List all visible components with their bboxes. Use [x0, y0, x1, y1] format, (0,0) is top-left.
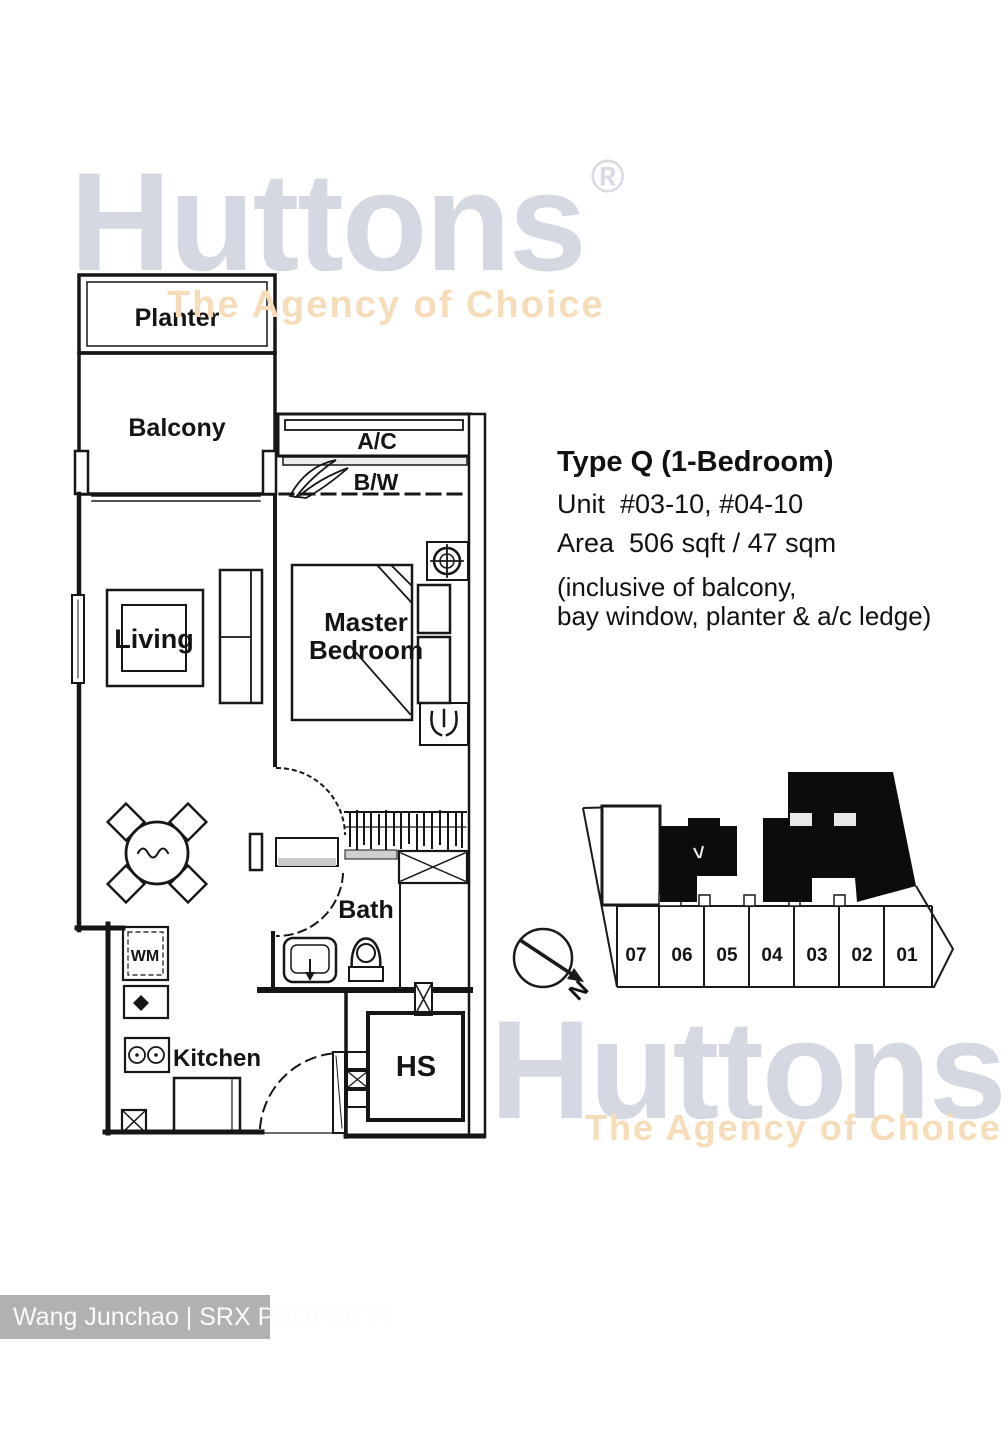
- living-window: [72, 595, 84, 683]
- unit-type-title: Type Q (1-Bedroom): [557, 446, 931, 479]
- credit-text: Wang Junchao | SRX PROPERTY: [0, 1303, 395, 1332]
- site-plan: 07 06 05 04 03 02 01: [583, 772, 953, 987]
- credit-bar: Wang Junchao | SRX PROPERTY: [0, 1295, 270, 1339]
- bay-window-label: B/W: [354, 469, 399, 495]
- stack-07: 07: [625, 945, 646, 966]
- area-note-line-1: (inclusive of balcony,: [557, 573, 931, 602]
- ac-ledge-label: A/C: [357, 428, 397, 454]
- master-bedroom-label-2: Bedroom: [309, 635, 423, 665]
- north-label: N: [563, 975, 593, 1005]
- living-label: Living: [114, 624, 194, 654]
- washing-machine-label: WM: [131, 948, 159, 965]
- stack-05: 05: [716, 945, 738, 966]
- master-bedroom-label-1: Master: [324, 607, 408, 637]
- right-wall: [469, 414, 485, 1137]
- bath-label: Bath: [338, 896, 394, 924]
- stack-01: 01: [896, 945, 918, 966]
- tower-a-tab: [688, 818, 720, 828]
- household-shelter-label: HS: [396, 1051, 436, 1083]
- planter-label: Planter: [135, 304, 220, 332]
- unit-slot-1: [790, 813, 812, 826]
- unit-numbers-line: Unit #03-10, #04-10: [557, 489, 931, 520]
- tower-block-a: [660, 826, 737, 902]
- kitchen-label: Kitchen: [173, 1045, 261, 1072]
- stack-02: 02: [851, 945, 872, 966]
- stack-03: 03: [806, 945, 827, 966]
- unit-slot-2: [834, 813, 856, 826]
- stack-04: 04: [761, 945, 783, 966]
- stack-numbers: 07 06 05 04 03 02 01: [625, 945, 918, 966]
- north-compass-icon: N: [514, 929, 593, 1005]
- unit-info-block: Type Q (1-Bedroom) Unit #03-10, #04-10 A…: [557, 446, 931, 631]
- tower-block-b: [763, 772, 916, 902]
- unit-area-line: Area 506 sqft / 47 sqm: [557, 528, 931, 559]
- balcony-label: Balcony: [128, 414, 225, 442]
- floorplan-canvas: Planter Balcony A/C B/W: [0, 0, 1008, 1440]
- area-note-line-2: bay window, planter & a/c ledge): [557, 602, 931, 631]
- stack-06: 06: [671, 945, 692, 966]
